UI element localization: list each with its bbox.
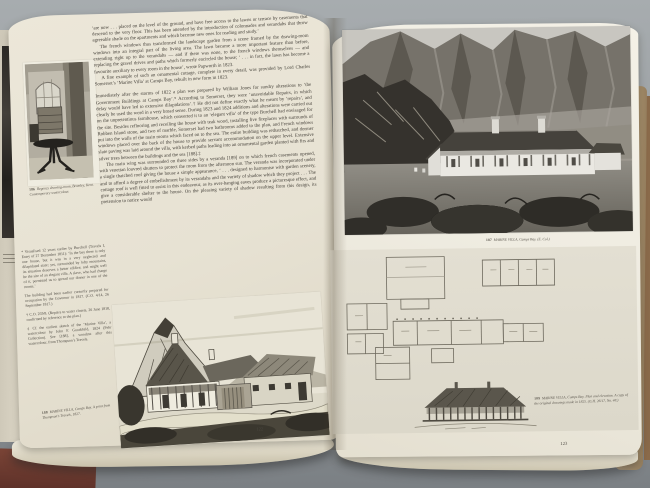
figure-188-caption: 188 MARINE VILLA, Camps Bay. A print fro… bbox=[42, 401, 129, 420]
page-number-right: 123 bbox=[549, 441, 579, 446]
figure-189-number: 189 bbox=[534, 396, 540, 400]
figure-187-caption-text: MARINE VILLA, Camps Bay. (E. Col.) bbox=[494, 237, 550, 242]
figure-189-elevation-drawing bbox=[414, 379, 537, 433]
footnote: The building had been earlier cursorily … bbox=[25, 287, 110, 309]
body-text-column: ‘are now . . . placed on the level of th… bbox=[92, 15, 323, 304]
book-photo-scene: 186 Regency drawing-room, Bromley, Kent.… bbox=[0, 0, 650, 488]
figure-187-photo bbox=[342, 26, 633, 235]
figure-186-image bbox=[23, 59, 100, 186]
figure-189-caption-text: MARINE VILLA, Camps Bay. Plan and elevat… bbox=[534, 393, 628, 406]
figure-187-caption: 187 MARINE VILLA, Camps Bay. (E. Col.) bbox=[486, 236, 616, 242]
left-page: 186 Regency drawing-room, Bromley, Kent.… bbox=[8, 8, 341, 449]
figure-188-image bbox=[112, 292, 330, 449]
figure-189-plan-drawing bbox=[330, 249, 564, 382]
footnote: * Visualised 12 years earlier by Burchel… bbox=[21, 244, 108, 290]
margin-footnotes: * Visualised 12 years earlier by Burchel… bbox=[21, 244, 113, 351]
right-page: 187 MARINE VILLA, Camps Bay. (E. Col.) bbox=[332, 23, 642, 458]
figure-187-number: 187 bbox=[486, 238, 492, 242]
footnote: ‡ Cf. the earliest sketch of the ‘Marine… bbox=[27, 320, 112, 347]
book-gutter-shadow bbox=[323, 18, 347, 450]
figure-189-plate: 189 MARINE VILLA, Camps Bay. Plan and el… bbox=[330, 246, 639, 434]
figure-189-caption: 189 MARINE VILLA, Camps Bay. Plan and el… bbox=[534, 393, 632, 407]
previous-page-caption-fragment bbox=[3, 254, 15, 264]
paragraph: Immediately after the storms of 1822 a p… bbox=[95, 83, 314, 163]
figure-188-caption-text: MARINE VILLA, Camps Bay. A print from Th… bbox=[42, 403, 110, 419]
